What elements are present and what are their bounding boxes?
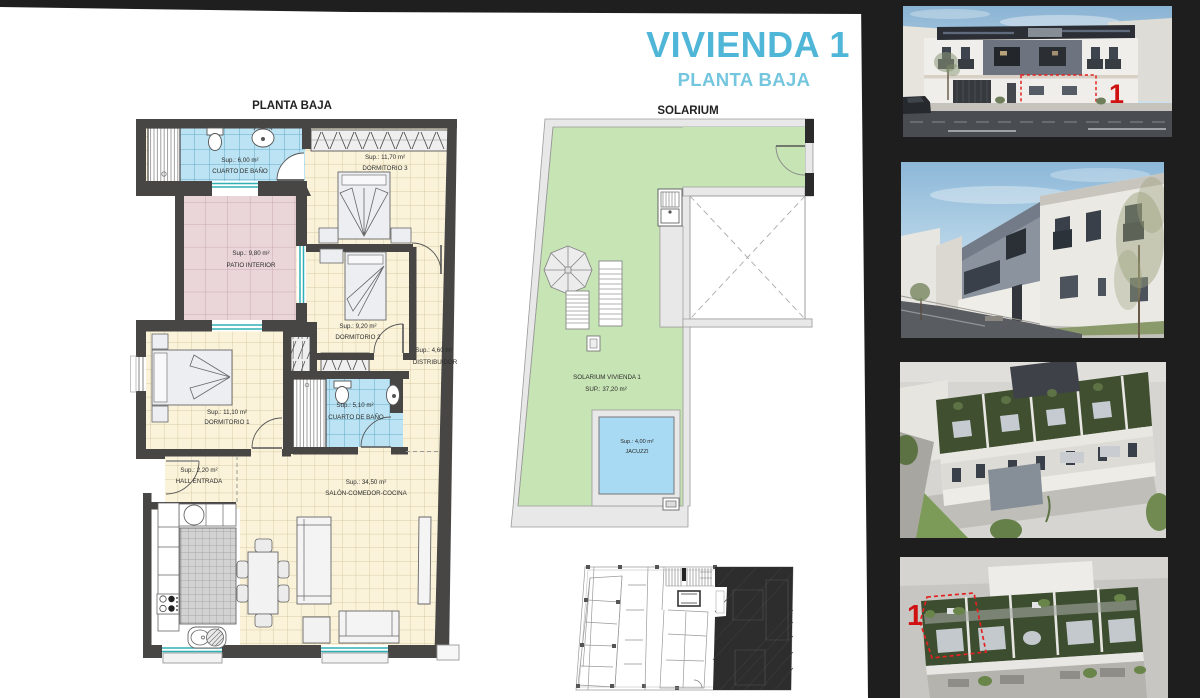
svg-text:PATIO INTERIOR: PATIO INTERIOR xyxy=(227,262,276,269)
svg-text:DORMITORIO 2: DORMITORIO 2 xyxy=(335,334,381,341)
svg-text:1: 1 xyxy=(907,600,923,632)
svg-text:Sup.: 34,50 m²: Sup.: 34,50 m² xyxy=(346,479,387,486)
svg-text:CUARTO DE BAÑO: CUARTO DE BAÑO xyxy=(328,414,384,421)
svg-text:Sup.: 11,10 m²: Sup.: 11,10 m² xyxy=(207,409,247,416)
svg-text:CUARTO DE BAÑO: CUARTO DE BAÑO xyxy=(212,168,268,175)
svg-text:Sup.: 5,10 m²: Sup.: 5,10 m² xyxy=(336,402,373,409)
svg-text:DISTRIBUIDOR: DISTRIBUIDOR xyxy=(413,359,458,366)
svg-text:SOLARIUM VIVIENDA 1: SOLARIUM VIVIENDA 1 xyxy=(573,374,641,381)
svg-text:Sup.: 9,20 m²: Sup.: 9,20 m² xyxy=(339,323,376,330)
svg-text:PLANTA BAJA: PLANTA BAJA xyxy=(678,69,811,90)
svg-text:Sup.: 2,20 m²: Sup.: 2,20 m² xyxy=(180,467,217,474)
svg-text:Sup.: 6,00 m²: Sup.: 6,00 m² xyxy=(221,157,258,164)
svg-text:HALL ENTRADA: HALL ENTRADA xyxy=(176,478,223,485)
svg-text:PLANTA BAJA: PLANTA BAJA xyxy=(252,100,332,112)
svg-text:Sup.: 11,70 m²: Sup.: 11,70 m² xyxy=(365,154,405,161)
svg-text:DORMITORIO 1: DORMITORIO 1 xyxy=(204,419,250,426)
svg-text:Sup.: 4,00 m²: Sup.: 4,00 m² xyxy=(620,439,654,445)
svg-text:JACUZZI: JACUZZI xyxy=(626,449,649,455)
svg-text:SUP.: 37,20 m²: SUP.: 37,20 m² xyxy=(585,386,627,393)
svg-text:VIVIENDA 1: VIVIENDA 1 xyxy=(646,24,850,65)
svg-text:DORMITORIO 3: DORMITORIO 3 xyxy=(362,165,408,172)
svg-text:Sup.: 4,60 m²: Sup.: 4,60 m² xyxy=(415,347,452,354)
svg-text:Sup.: 9,80 m²: Sup.: 9,80 m² xyxy=(232,250,269,257)
svg-text:SALÓN-COMEDOR-COCINA: SALÓN-COMEDOR-COCINA xyxy=(325,490,407,497)
svg-text:SOLARIUM: SOLARIUM xyxy=(657,105,718,117)
